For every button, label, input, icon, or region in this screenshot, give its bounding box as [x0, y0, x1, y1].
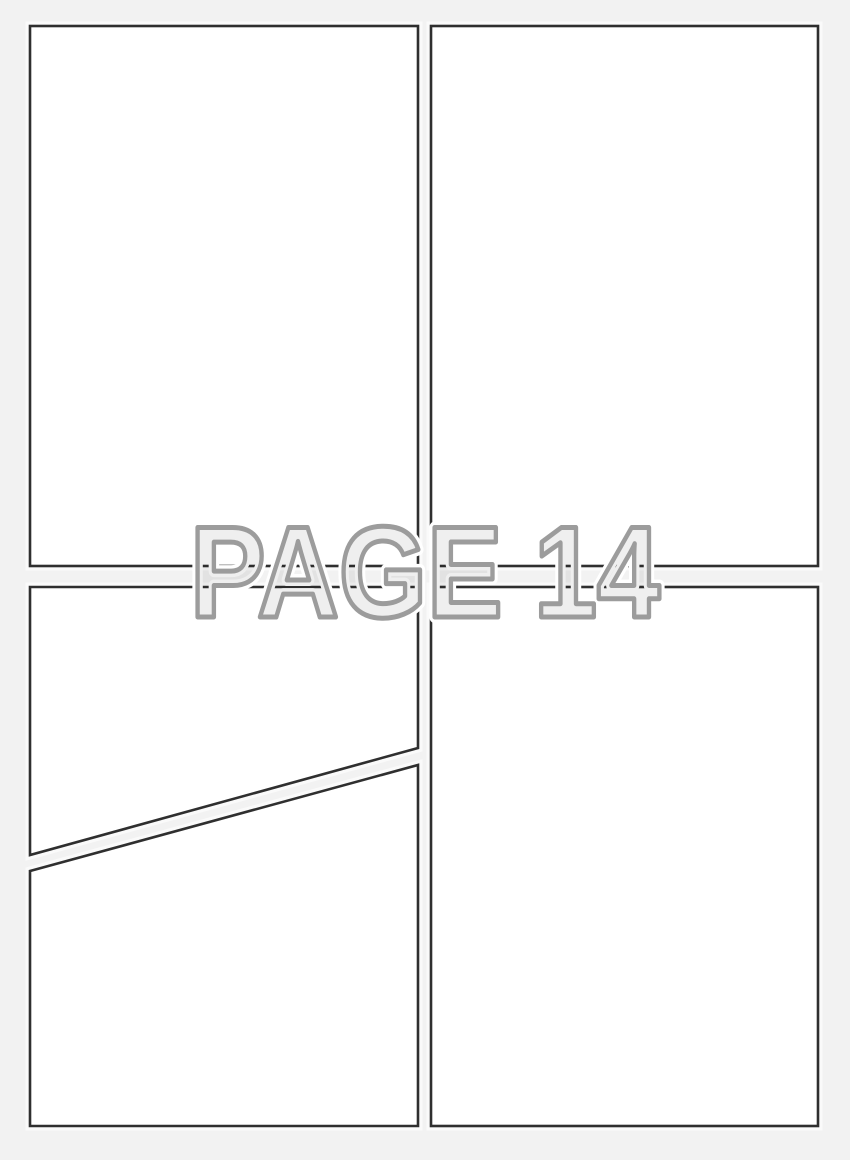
panel-top-right [431, 26, 818, 566]
page-number-watermark: PAGE 14 PAGE 14 PAGE 14 [190, 499, 660, 645]
panel-top-left [30, 26, 418, 566]
panel-bottom-right [431, 587, 818, 1126]
comic-page-template: PAGE 14 PAGE 14 PAGE 14 [0, 0, 850, 1160]
page-number-watermark-outline: PAGE 14 [190, 499, 660, 645]
